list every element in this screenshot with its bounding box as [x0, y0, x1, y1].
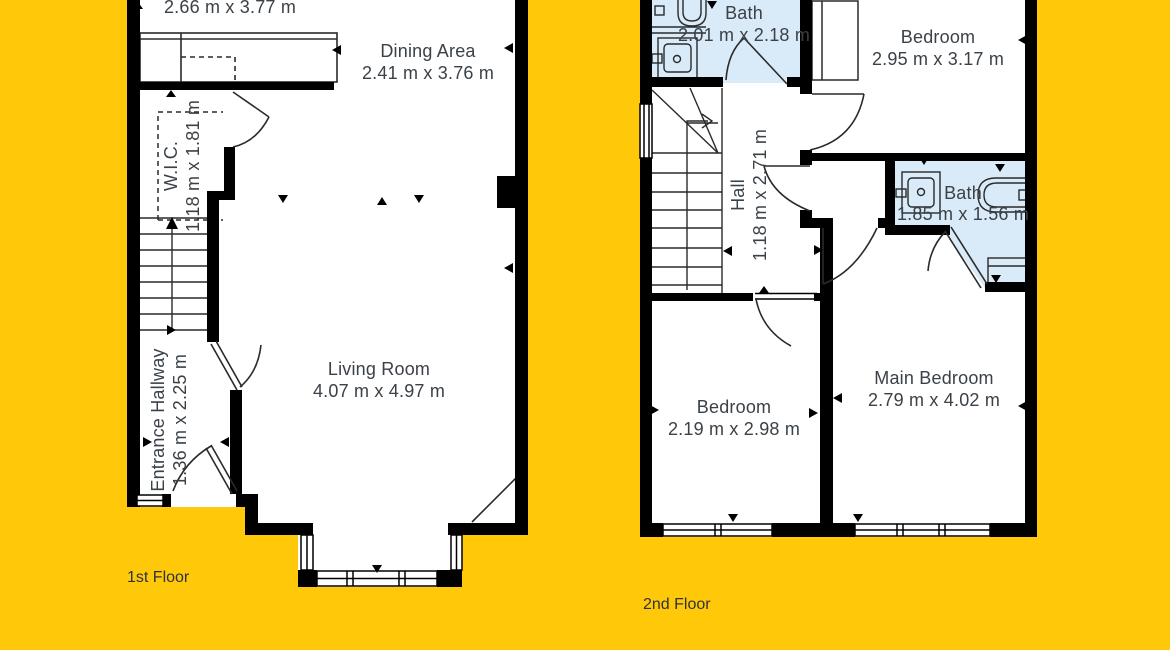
- bedroom1-label: Bedroom 2.95 m x 3.17 m: [872, 26, 1004, 70]
- floor1-plan: [127, 0, 528, 587]
- room-dims: 2.01 m x 2.18 m: [678, 24, 810, 46]
- bath2-label: Bath 1.85 m x 1.56 m: [897, 183, 1029, 225]
- room-dims: 2.41 m x 3.76 m: [362, 62, 494, 84]
- floor2-plan: [640, 0, 1037, 537]
- room-dims: 2.19 m x 2.98 m: [668, 418, 800, 440]
- floor2-title: 2nd Floor: [643, 596, 711, 614]
- room-name: Dining Area: [362, 40, 494, 62]
- room-name: W.I.C.: [160, 100, 182, 232]
- room-dims: 1.85 m x 1.56 m: [897, 204, 1029, 225]
- room-name: Living Room: [313, 358, 445, 380]
- room-name: Bedroom: [872, 26, 1004, 48]
- hallway-window: [137, 495, 163, 506]
- room-dims: 4.07 m x 4.97 m: [313, 380, 445, 402]
- bay-window-right: [451, 535, 462, 570]
- main-bedroom-label: Main Bedroom 2.79 m x 4.02 m: [868, 367, 1000, 411]
- room-name: Entrance Hallway: [147, 348, 169, 491]
- room-name: Bath: [678, 2, 810, 24]
- hall-window: [640, 104, 652, 158]
- wic-label: W.I.C. 1.18 m x 1.81 m: [160, 100, 204, 232]
- dining-area-label: Dining Area 2.41 m x 3.76 m: [362, 40, 494, 84]
- floor1-title: 1st Floor: [127, 569, 189, 587]
- room-name: Bedroom: [668, 396, 800, 418]
- bedroom2-window: [663, 524, 772, 536]
- room-name: Hall: [727, 129, 749, 261]
- room-dims: 1.18 m x 1.81 m: [182, 100, 204, 232]
- room-dims: 2.95 m x 3.17 m: [872, 48, 1004, 70]
- room-dims: 1.36 m x 2.25 m: [169, 348, 191, 491]
- room-name: Main Bedroom: [868, 367, 1000, 389]
- room-dims: 2.66 m x 3.77 m: [164, 0, 296, 18]
- bay-window-front: [317, 571, 437, 586]
- kitchen-label: 2.66 m x 3.77 m: [164, 0, 296, 18]
- entrance-hallway-label: Entrance Hallway 1.36 m x 2.25 m: [147, 348, 191, 491]
- room-dims: 1.18 m x 2.71 m: [749, 129, 771, 261]
- bath1-label: Bath 2.01 m x 2.18 m: [678, 2, 810, 46]
- hall-label: Hall 1.18 m x 2.71 m: [727, 129, 771, 261]
- bay-window-left: [301, 535, 313, 570]
- floorplan-canvas: [0, 0, 1170, 650]
- main-bedroom-window: [855, 524, 990, 536]
- room-dims: 2.79 m x 4.02 m: [868, 389, 1000, 411]
- bedroom2-label: Bedroom 2.19 m x 2.98 m: [668, 396, 800, 440]
- room-name: Bath: [897, 183, 1029, 204]
- living-room-label: Living Room 4.07 m x 4.97 m: [313, 358, 445, 402]
